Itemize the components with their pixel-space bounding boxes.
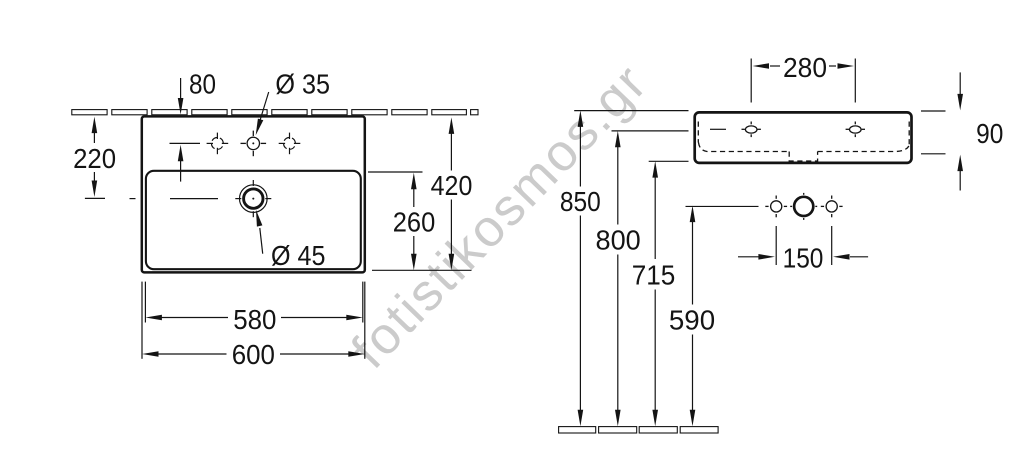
svg-text:150: 150: [783, 242, 824, 273]
svg-text:220: 220: [73, 143, 116, 174]
svg-text:715: 715: [632, 259, 676, 290]
svg-text:Ø 35: Ø 35: [275, 69, 330, 100]
svg-text:580: 580: [233, 304, 276, 335]
svg-text:600: 600: [232, 339, 275, 370]
svg-text:850: 850: [560, 186, 601, 217]
svg-text:280: 280: [783, 52, 827, 83]
svg-text:260: 260: [393, 207, 436, 238]
svg-text:90: 90: [976, 118, 1003, 149]
svg-text:Ø 45: Ø 45: [271, 240, 325, 271]
svg-text:800: 800: [596, 225, 641, 256]
svg-text:590: 590: [669, 304, 715, 335]
svg-text:420: 420: [431, 170, 473, 201]
svg-text:80: 80: [189, 69, 216, 100]
